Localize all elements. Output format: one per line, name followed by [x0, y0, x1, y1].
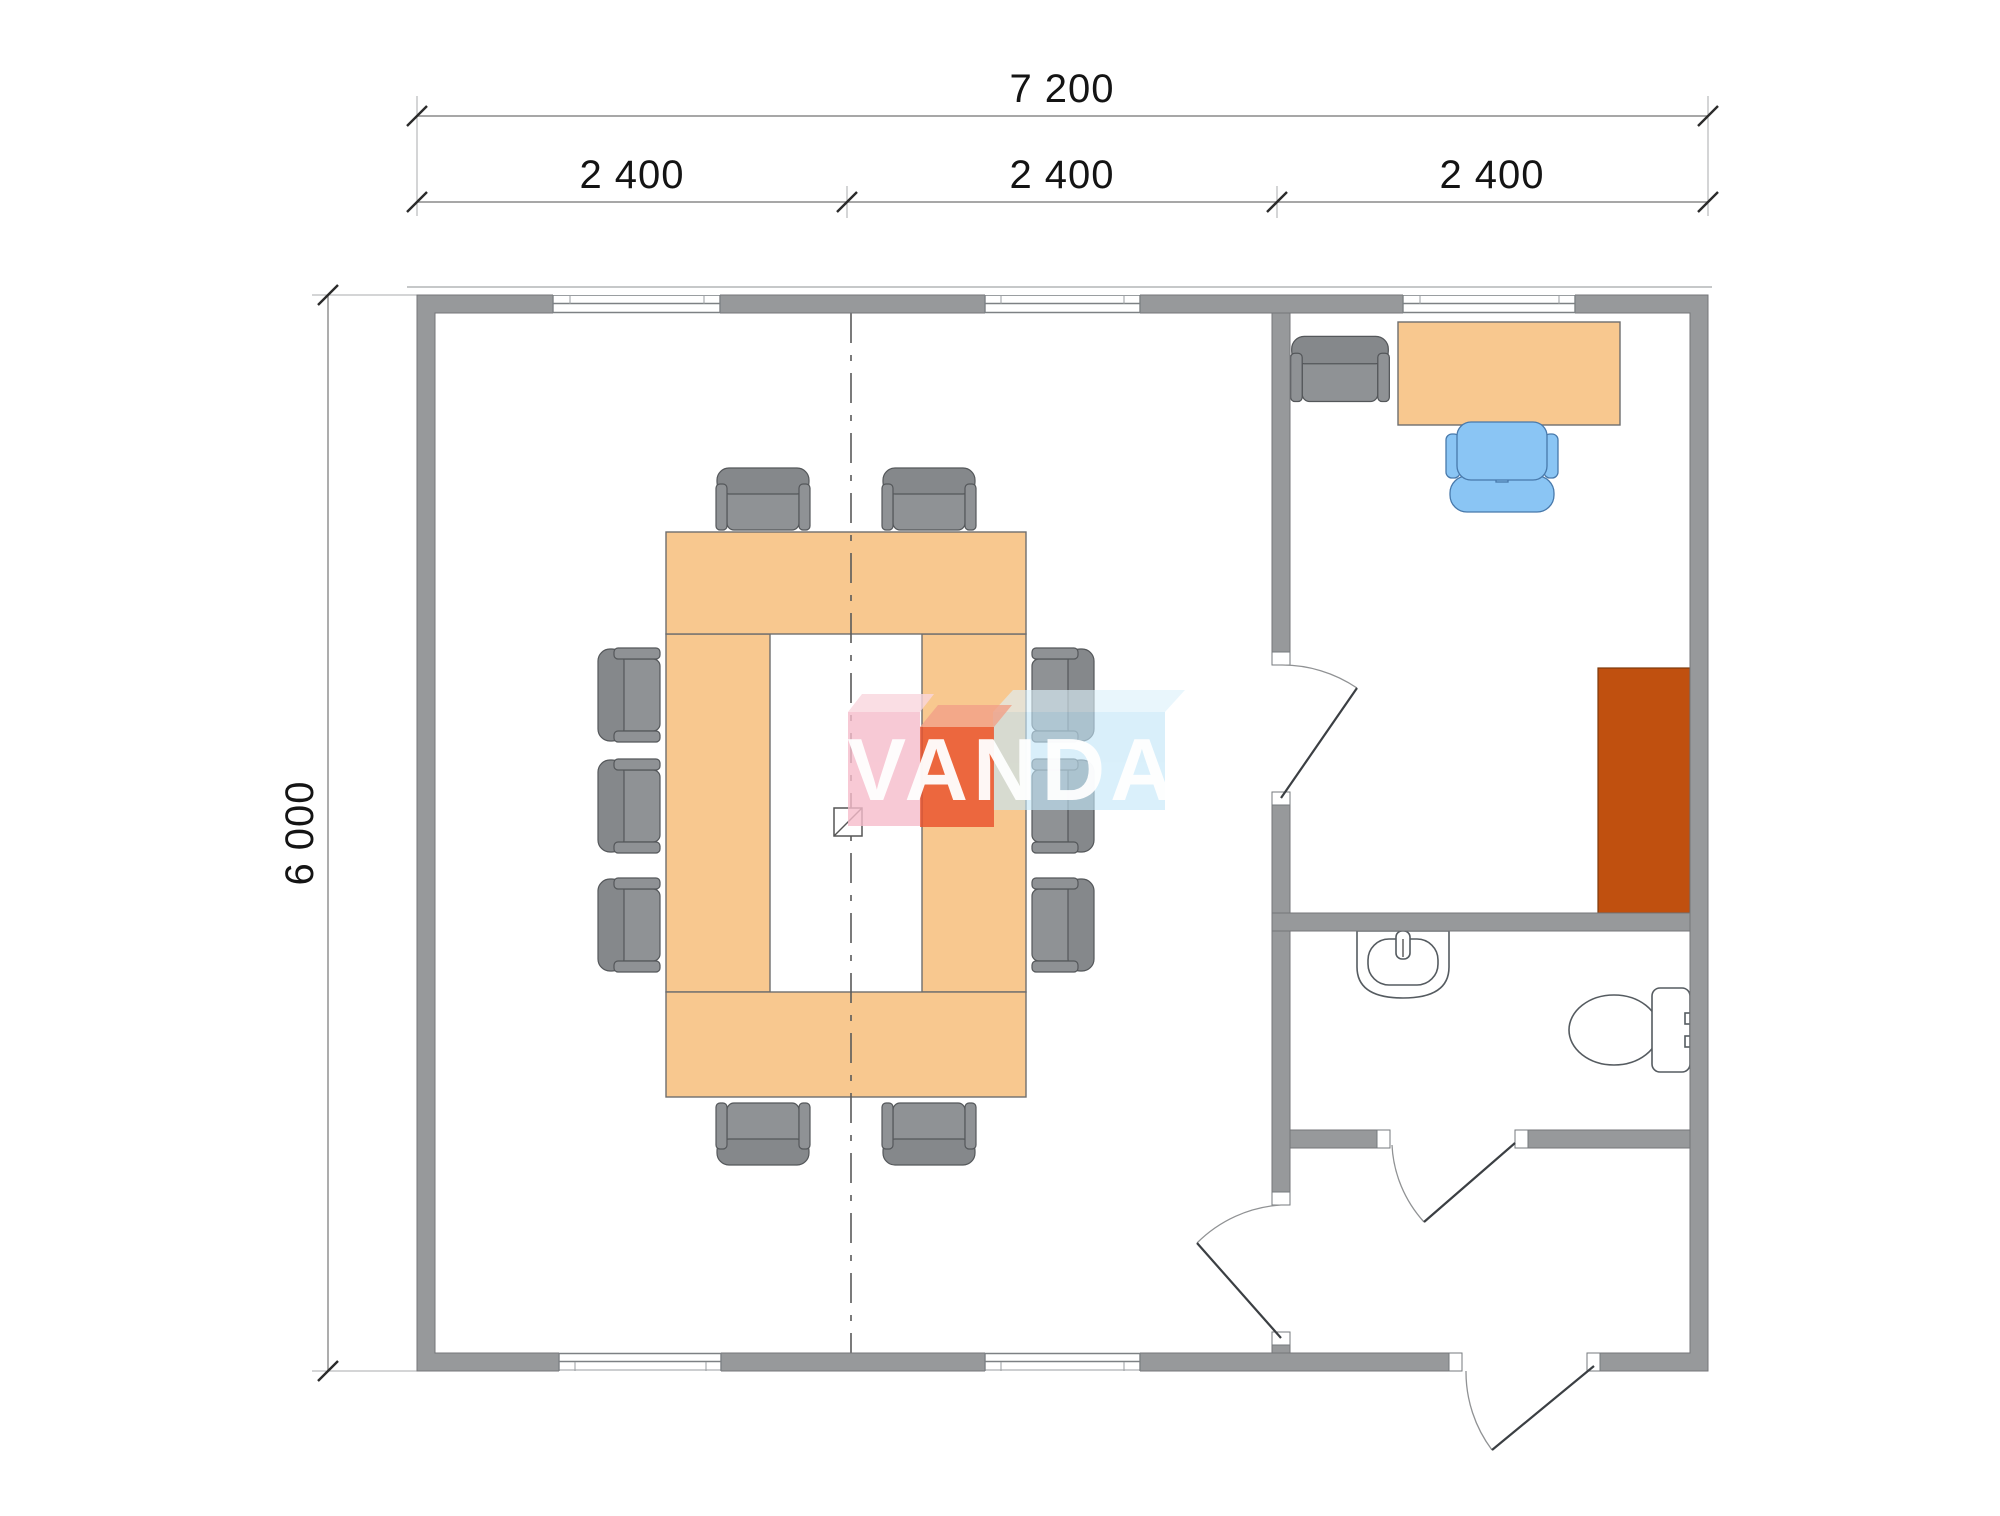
office-door-jamb-top: [1272, 652, 1290, 665]
hall-door: [1197, 1205, 1281, 1338]
floor-plan-canvas: 7 200 2 400 2 400 2 400 6 000: [0, 0, 2000, 1516]
window-bottom-2: [985, 1352, 1140, 1372]
partition-office-upper: [1272, 313, 1290, 652]
hall-door-jamb-top: [1272, 1192, 1290, 1205]
task-chair-seat: [1457, 422, 1547, 480]
entrance-jamb-left: [1449, 1353, 1462, 1371]
partition-hall-stub: [1272, 1345, 1290, 1353]
chair-left-2: [598, 759, 660, 853]
bathroom-door-jamb-left: [1377, 1130, 1390, 1148]
toilet-flush-button-1: [1685, 1013, 1690, 1024]
floor-plan-drawing: 7 200 2 400 2 400 2 400 6 000: [0, 0, 2000, 1516]
chair-left-1: [598, 648, 660, 742]
entrance-door: [1466, 1366, 1594, 1450]
chair-top-1: [716, 468, 810, 530]
wall-bathroom-hall-right: [1528, 1130, 1690, 1148]
wall-bathroom-hall-left: [1290, 1130, 1377, 1148]
office-task-chair: [1446, 422, 1558, 512]
dim-label-bay-3: 2 400: [1439, 153, 1544, 197]
partition-office-lower: [1272, 805, 1290, 931]
toilet-flush-button-2: [1685, 1036, 1690, 1047]
toilet-bowl: [1569, 995, 1659, 1065]
toilet: [1569, 988, 1690, 1072]
office-door: [1281, 665, 1357, 798]
chair-bottom-1: [716, 1103, 810, 1165]
window-top-1: [553, 294, 720, 314]
table-left-slab: [666, 634, 770, 992]
bathroom-door-jamb-right: [1515, 1130, 1528, 1148]
office-armchair: [1291, 336, 1390, 401]
sink: [1357, 923, 1449, 998]
window-top-2: [985, 294, 1140, 314]
entrance-jamb-right: [1587, 1353, 1600, 1371]
chair-right-3: [1032, 878, 1094, 972]
dim-label-bay-2: 2 400: [1009, 153, 1114, 197]
dimension-left-total: 6 000: [278, 285, 417, 1381]
chair-left-3: [598, 878, 660, 972]
bathroom-door: [1392, 1143, 1515, 1222]
watermark-text: VANDA: [847, 720, 1178, 819]
hall-door-jamb-bottom: [1272, 1332, 1290, 1345]
entrance-opening: [1449, 1352, 1600, 1372]
window-bottom-1: [559, 1352, 721, 1372]
dim-label-total-height: 6 000: [278, 780, 322, 885]
window-top-3: [1403, 294, 1575, 314]
chair-top-2: [882, 468, 976, 530]
dim-label-bay-1: 2 400: [579, 153, 684, 197]
wall-office-bathroom: [1272, 913, 1690, 931]
table-bottom-slab: [666, 992, 1026, 1097]
partition-hall-upper: [1272, 931, 1290, 1192]
dimension-top-bays: 2 400 2 400 2 400: [407, 153, 1718, 218]
toilet-tank: [1652, 988, 1690, 1072]
office-door-jamb-bottom: [1272, 792, 1290, 805]
vanda-watermark: VANDA: [847, 690, 1185, 827]
table-top-slab: [666, 532, 1026, 634]
office-cabinet: [1598, 668, 1690, 913]
chair-bottom-2: [882, 1103, 976, 1165]
dim-label-total-width: 7 200: [1009, 67, 1114, 111]
office-desk: [1398, 322, 1620, 425]
